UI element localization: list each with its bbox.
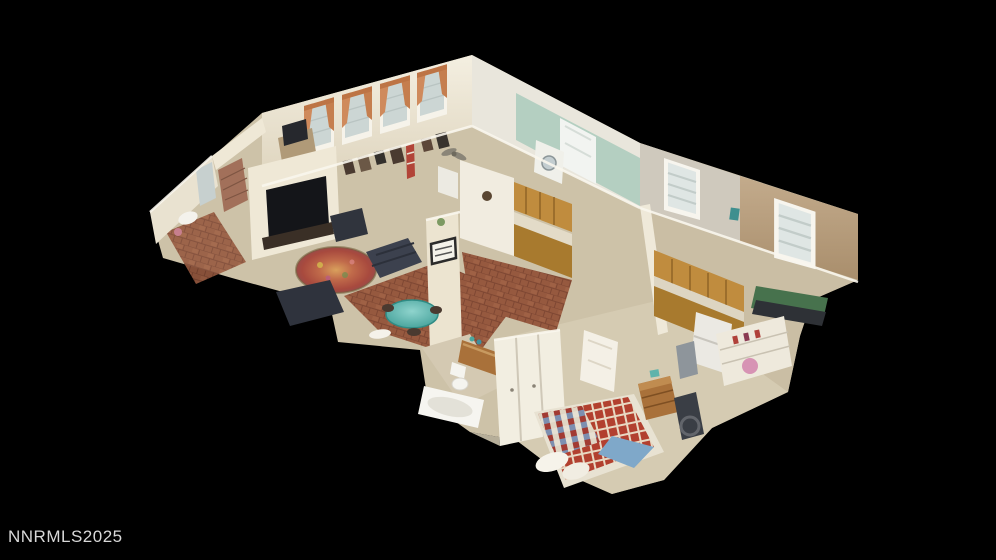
watermark-text: NNRMLS2025 [8, 528, 123, 546]
bottle-1 [470, 337, 475, 342]
red-banner [406, 143, 415, 179]
framed-sign [431, 238, 456, 264]
bottle-2 [477, 340, 482, 345]
towel [174, 228, 182, 236]
dollhouse-viewer: NNRMLS2025 [0, 0, 996, 560]
window-curtains-4 [417, 64, 447, 123]
wall-clock [482, 191, 492, 201]
closet-knob-1 [510, 388, 514, 392]
window-curtains-2 [342, 86, 372, 145]
plant-on-wall [437, 218, 445, 226]
teal-wall-art [729, 208, 740, 221]
closet-knob-2 [532, 384, 536, 388]
window-curtains-3 [380, 75, 410, 134]
toilet-bowl [452, 378, 468, 390]
sign-wall [426, 212, 462, 352]
pink-basket [742, 358, 758, 374]
dollhouse-3d-render[interactable] [0, 0, 996, 560]
